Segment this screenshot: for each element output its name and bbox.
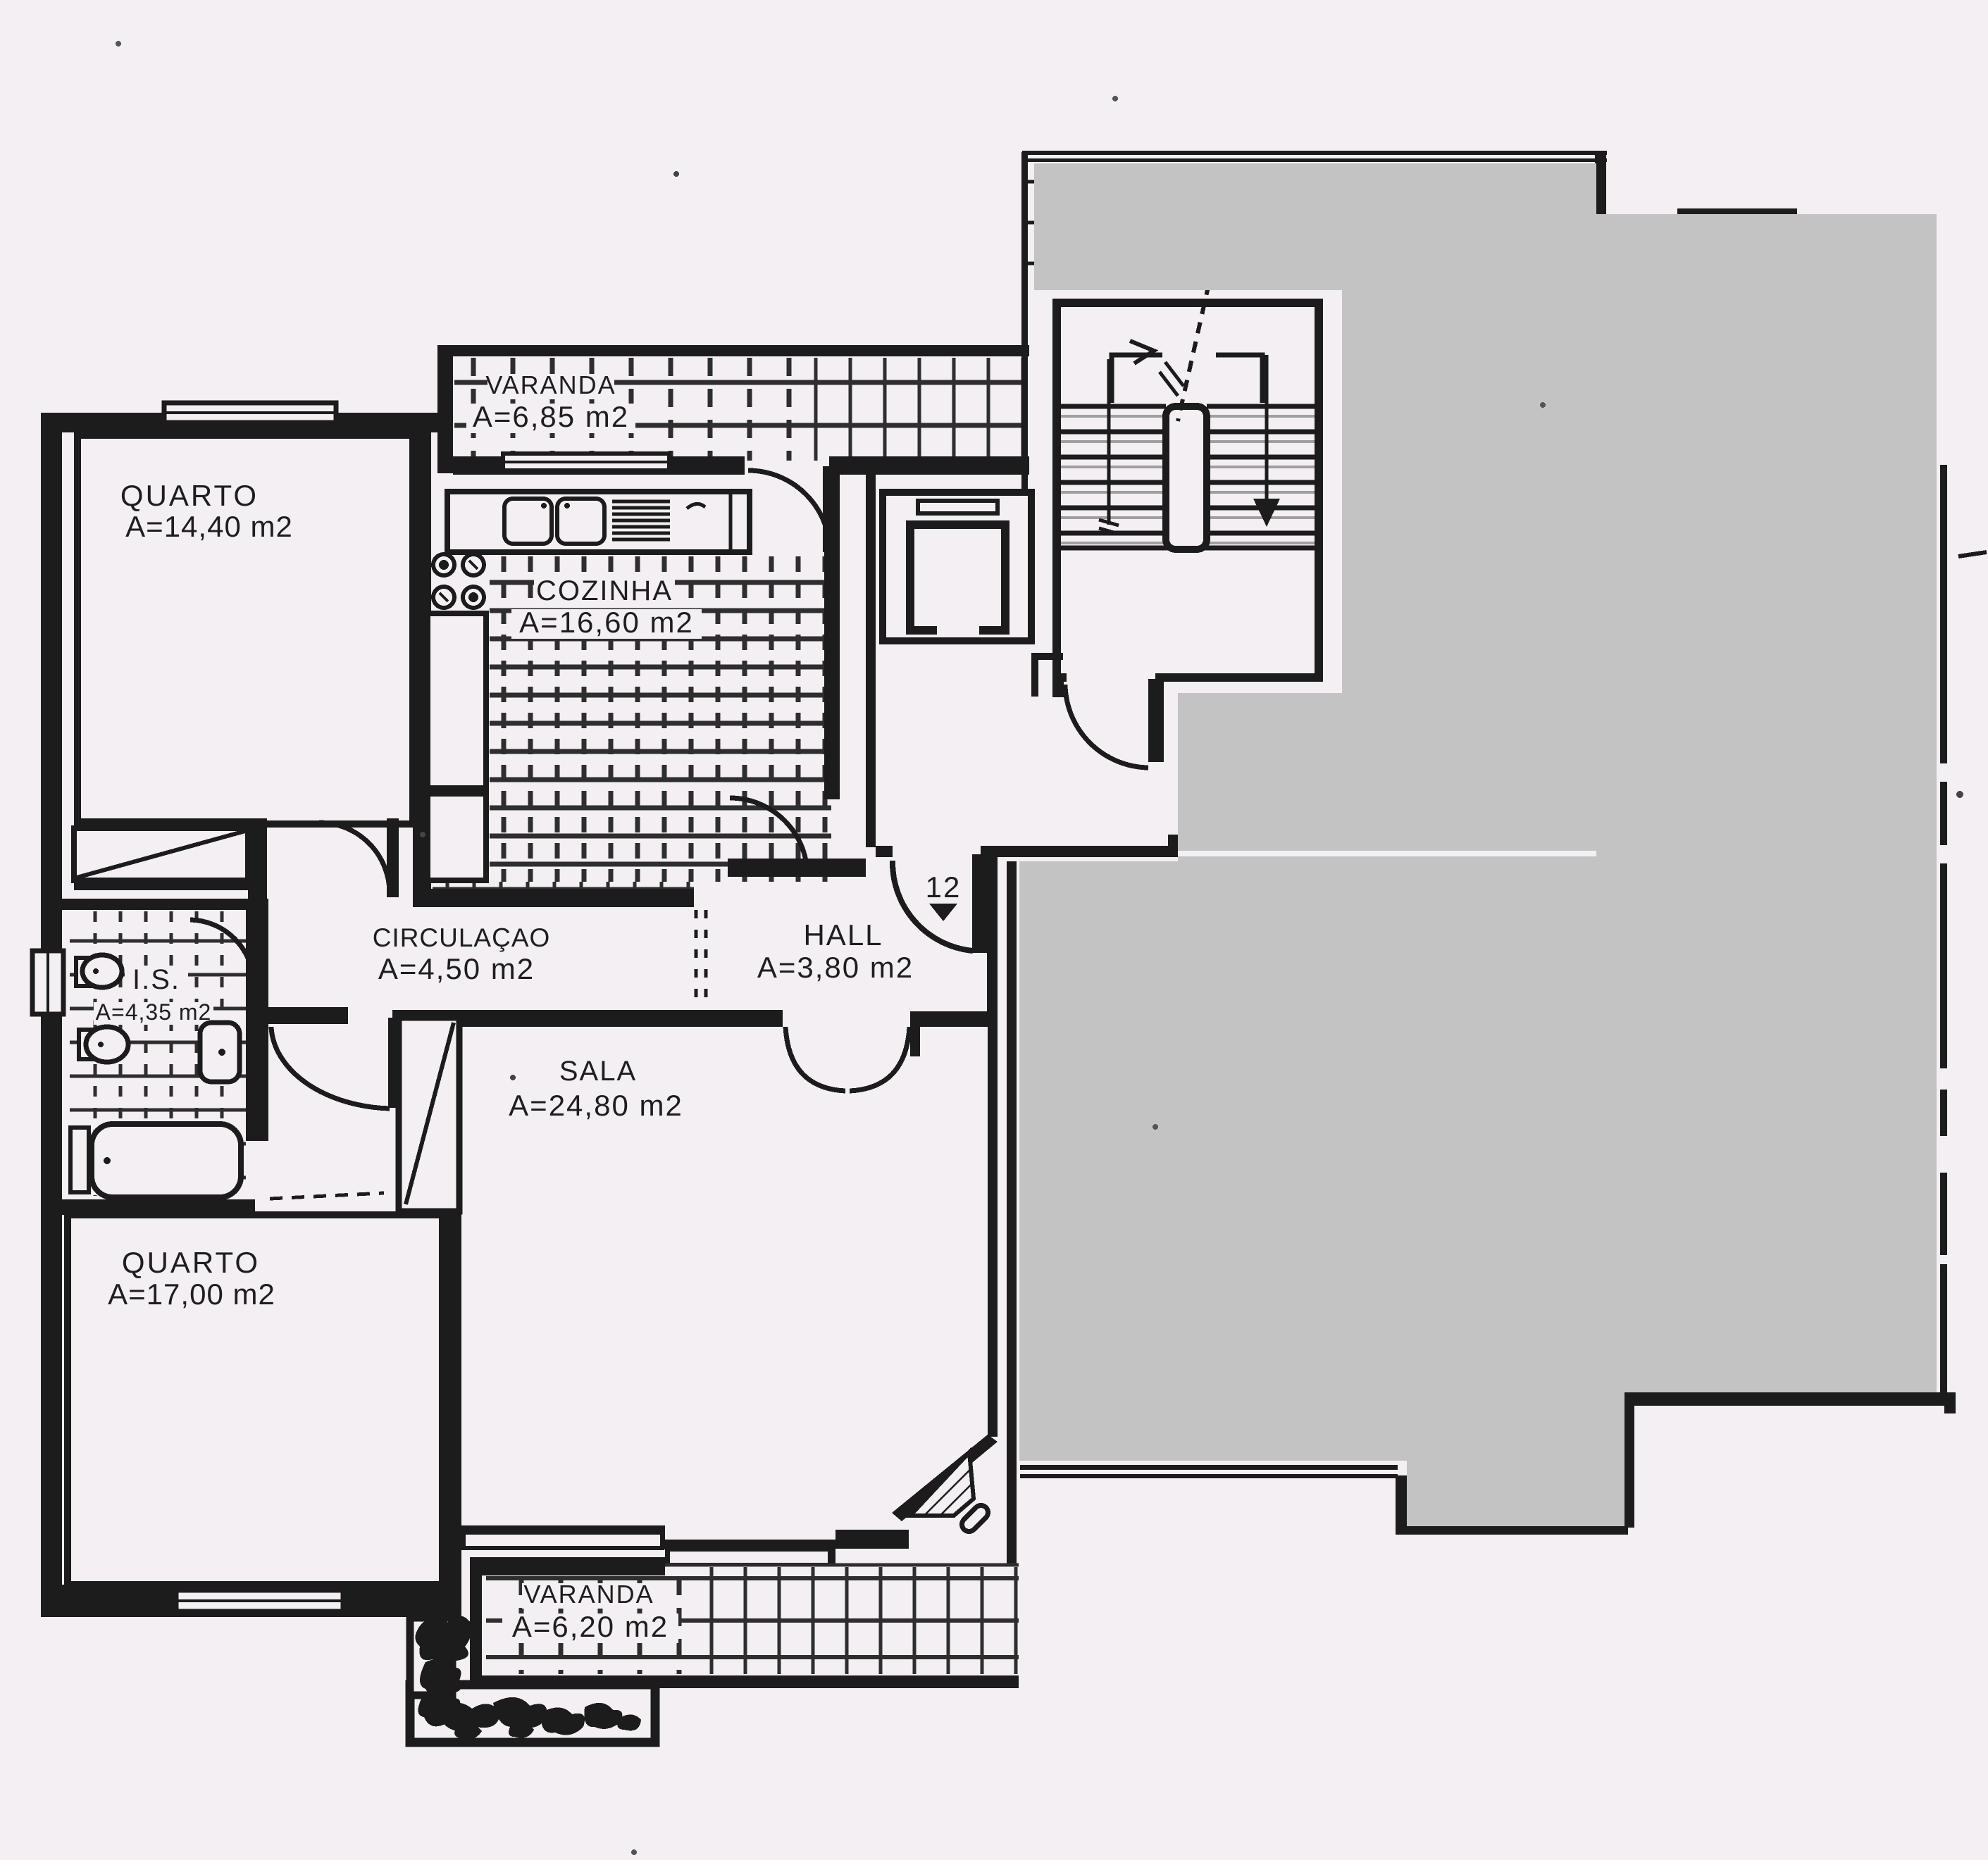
svg-text:QUARTO: QUARTO: [120, 479, 259, 512]
svg-text:A=14,40 m2: A=14,40 m2: [125, 510, 293, 543]
svg-text:A=4,35 m2: A=4,35 m2: [96, 999, 212, 1025]
svg-text:A=24,80 m2: A=24,80 m2: [509, 1089, 683, 1122]
svg-text:A=17,00 m2: A=17,00 m2: [108, 1278, 275, 1311]
svg-text:VARANDA: VARANDA: [523, 1580, 654, 1609]
svg-text:I.S.: I.S.: [132, 964, 180, 995]
svg-text:HALL: HALL: [803, 918, 883, 951]
svg-text:CIRCULAÇAO: CIRCULAÇAO: [373, 923, 551, 952]
svg-text:A=6,20 m2: A=6,20 m2: [512, 1610, 669, 1643]
svg-text:SALA: SALA: [559, 1056, 637, 1087]
svg-text:QUARTO: QUARTO: [122, 1246, 260, 1279]
svg-text:A=6,85 m2: A=6,85 m2: [473, 400, 629, 433]
svg-text:VARANDA: VARANDA: [485, 370, 616, 399]
svg-text:12: 12: [926, 870, 962, 904]
svg-text:COZINHA: COZINHA: [536, 575, 673, 606]
svg-text:A=16,60 m2: A=16,60 m2: [519, 606, 694, 639]
svg-text:A=4,50 m2: A=4,50 m2: [378, 952, 535, 985]
svg-text:A=3,80 m2: A=3,80 m2: [757, 951, 914, 984]
